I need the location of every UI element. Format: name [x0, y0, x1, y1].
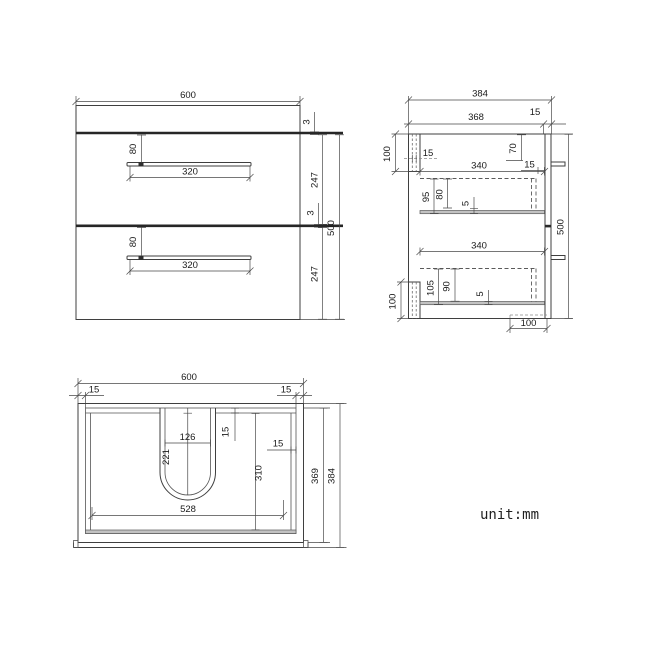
drawer1-handle-width-label: 320 — [182, 167, 198, 178]
deck-corner-left — [74, 541, 79, 548]
front-gap-top-label: 3 — [302, 119, 313, 124]
side-rim-label: 15 — [273, 439, 284, 450]
bottom-mounting-rail — [409, 282, 421, 319]
drawer1-bottom-panel — [420, 211, 545, 214]
side-drawer-gap-mark — [545, 225, 551, 228]
plan-width-label: 600 — [181, 372, 197, 383]
plan-rim-right-label: 15 — [281, 385, 292, 396]
unit-note: unit:mm — [480, 507, 539, 523]
side-height-label: 500 — [556, 219, 567, 235]
side-depth-overall-label: 384 — [472, 89, 488, 100]
drawer2-handle-width-label: 320 — [182, 260, 198, 271]
vanity-dimension-drawing: 600 80 320 80 320 3 247 3 247 500 — [0, 0, 650, 650]
bottom-rail-height-dim-lines — [397, 279, 409, 323]
deck-front-edge — [74, 543, 309, 548]
top-rail-height-dim-lines — [392, 131, 421, 176]
side-view: 384 368 15 100 15 70 15 340 95 — [382, 89, 573, 334]
drawer1-handle-mount — [139, 162, 144, 166]
drawer2-handle-offset-label: 80 — [128, 237, 139, 248]
side-depth-body-dim-lines — [404, 121, 566, 135]
plan-depth-inner-label: 369 — [310, 468, 321, 484]
front-gap-label: 15 — [524, 160, 535, 171]
drawer2-clearance-label: 5 — [475, 291, 486, 296]
drawer1-side-height-label: 80 — [435, 189, 446, 200]
drawer2-depth-label: 340 — [471, 241, 487, 252]
cabinet-front-outline — [76, 106, 300, 320]
drawer2-back-height-label: 105 — [426, 280, 437, 296]
side-handle-bottom — [551, 256, 565, 260]
bowl-bottom-edge — [86, 530, 297, 534]
side-depth-body-label: 368 — [468, 112, 484, 123]
top-rail-height-label: 100 — [382, 146, 393, 162]
deck-corner-right — [304, 541, 309, 548]
drawer1-handle-offset-label: 80 — [128, 144, 139, 155]
drawer1-back-height-label: 95 — [421, 192, 432, 203]
front-gap-middle-label: 3 — [306, 210, 317, 215]
drawer2-side-height-label: 90 — [442, 281, 453, 292]
top-rail-hidden-lines — [412, 134, 416, 172]
drawer1-clearance-label: 5 — [461, 201, 472, 206]
bowl-depth-label: 310 — [254, 465, 265, 481]
plan-view: 600 15 15 126 221 15 310 15 — [69, 372, 347, 548]
bottom-rail-hidden-lines — [412, 282, 416, 319]
bottom-rail-height-label: 100 — [388, 294, 399, 310]
bottom-recess-label: 100 — [521, 318, 537, 329]
front-height-label: 500 — [326, 220, 337, 236]
front-width-dim-label: 600 — [180, 90, 196, 101]
side-front-panel-label: 15 — [530, 107, 541, 118]
basin-outline — [78, 404, 304, 543]
back-rim-dim-lines — [231, 408, 239, 441]
back-panel-thickness-label: 15 — [423, 148, 434, 159]
drawer2-handle — [127, 256, 251, 260]
plan-depth-overall-label: 384 — [327, 468, 338, 484]
front-drawer2-height-label: 247 — [310, 266, 321, 282]
top-clearance-label: 70 — [508, 143, 519, 154]
plan-rim-left-label: 15 — [89, 385, 100, 396]
cutout-width-label: 126 — [180, 432, 196, 443]
technical-drawing-page: 600 80 320 80 320 3 247 3 247 500 — [0, 0, 650, 650]
back-rim-label: 15 — [221, 427, 232, 438]
top-mounting-rail — [409, 134, 421, 172]
side-handle-top — [551, 162, 565, 166]
bowl-width-label: 528 — [180, 504, 196, 515]
front-view: 600 80 320 80 320 3 247 3 247 500 — [73, 90, 346, 320]
drawer1-depth-label: 340 — [471, 161, 487, 172]
front-drawer1-height-label: 247 — [310, 172, 321, 188]
drawer2-handle-mount — [139, 256, 144, 260]
cutout-depth-label: 221 — [161, 449, 172, 465]
drawer1-handle — [127, 163, 251, 167]
